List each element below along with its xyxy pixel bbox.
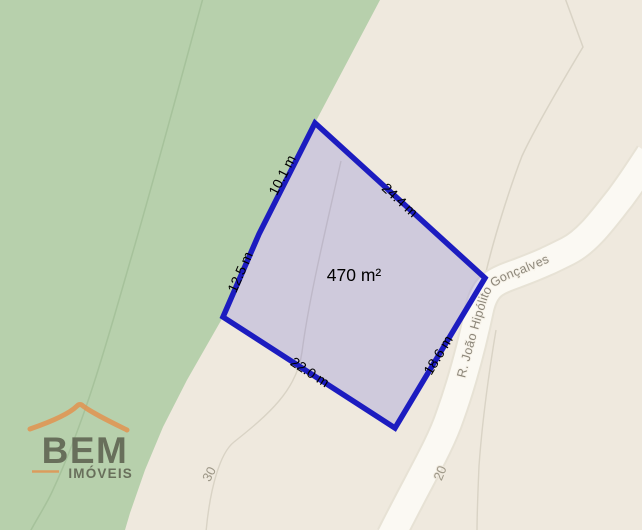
brand-tagline: IMÓVEIS <box>68 466 133 481</box>
map-svg: R. João Hipólito Gonçalves 30 20 10.1 m … <box>0 0 642 530</box>
property-map-canvas: R. João Hipólito Gonçalves 30 20 10.1 m … <box>0 0 642 530</box>
brand-name: BEM <box>42 430 129 471</box>
lot-area-label: 470 m² <box>327 265 382 285</box>
